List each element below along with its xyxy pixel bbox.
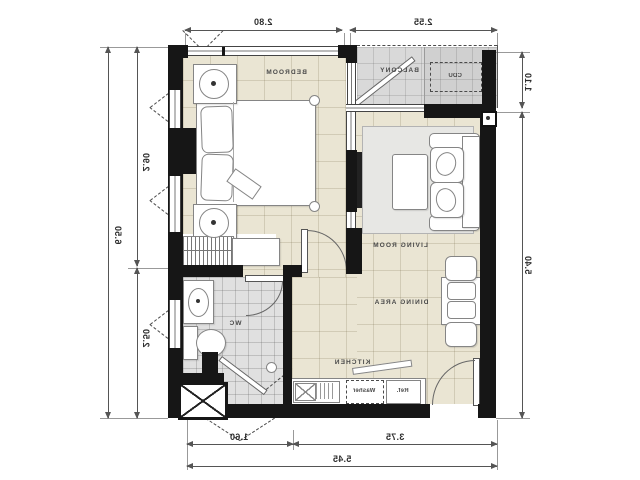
sink-basin <box>295 383 316 401</box>
wall-bedroom-balcony <box>346 45 357 63</box>
shower-head <box>266 362 277 373</box>
floor-plan: BEDROOM BALCONY CDU LIVING ROOM DINING A… <box>0 0 640 480</box>
wall-south-bedroom-2 <box>283 265 302 277</box>
dim-left-upper: 2.90 <box>140 142 152 182</box>
service-shaft <box>178 382 228 420</box>
dim-line-top-balcony <box>350 30 497 31</box>
extension-line <box>293 430 294 450</box>
wall-wc-east <box>283 277 292 404</box>
dining-placemat-2 <box>447 301 476 319</box>
dim-right-lower: 5.40 <box>522 245 534 285</box>
lamp-bottom-center <box>211 220 216 225</box>
dining-placemat-1 <box>447 282 476 300</box>
wall-balcony-bottom <box>424 104 482 118</box>
balcony-railing <box>357 45 497 46</box>
sink-drainboard <box>316 383 336 399</box>
bedroom-balcony-window <box>347 63 356 108</box>
wall-bottom-right <box>478 404 496 418</box>
sofa-back <box>462 136 480 228</box>
balcony-rail-right <box>497 45 498 108</box>
dim-bottom-left: 1.60 <box>214 431 264 443</box>
extension-line <box>344 33 345 45</box>
bedroom-east-window-1 <box>346 108 356 150</box>
dining-area-label: DINING AREA <box>356 296 446 308</box>
dim-left-lower: 2.50 <box>140 318 152 358</box>
bedroom-top-window <box>188 46 338 56</box>
dim-line-left-upper <box>137 47 138 266</box>
balcony-slider <box>346 104 424 112</box>
bedroom-left-window-2 <box>169 176 181 232</box>
dim-line-bottom-right <box>293 444 497 445</box>
bed-post-bottom <box>309 201 320 212</box>
bed-post-top <box>309 95 320 106</box>
pillow-1 <box>200 105 234 153</box>
dim-line-left-overall <box>108 47 109 418</box>
living-room-label: LIVING ROOM <box>355 239 445 251</box>
wc-left-window <box>169 300 181 348</box>
dim-line-left-lower <box>137 268 138 418</box>
coffee-table <box>392 154 428 210</box>
wall-balcony-right-pier <box>482 50 496 108</box>
dim-right-upper: 1.10 <box>522 62 534 102</box>
vanity-faucet <box>196 299 200 303</box>
bedroom-left-window-1 <box>169 90 181 128</box>
window-mullion <box>222 47 225 56</box>
wall-right <box>480 104 496 404</box>
washer-label: Washer <box>346 385 382 397</box>
wardrobe <box>178 236 234 266</box>
ref-label: Ref. <box>386 385 419 397</box>
wall-tv <box>346 150 357 212</box>
dining-chair-bottom <box>445 322 477 347</box>
extension-line <box>497 33 498 45</box>
dim-bottom-right: 3.75 <box>370 431 420 443</box>
dresser <box>232 238 280 266</box>
balcony-label: BALCONY <box>359 64 439 76</box>
dim-top-bedroom: 2.80 <box>238 16 288 28</box>
tv <box>357 152 362 208</box>
dining-chair-top <box>445 256 477 281</box>
wall-south-bedroom-1 <box>168 265 243 277</box>
bedroom-east-window-2 <box>346 212 356 228</box>
dim-left-overall: 6.50 <box>112 215 124 255</box>
dim-top-balcony: 2.55 <box>398 16 448 28</box>
balcony-cdu-divider <box>424 47 425 108</box>
wall-bedroom-corner <box>346 228 362 274</box>
bedroom-label: BEDROOM <box>246 66 326 78</box>
dim-line-bottom-overall <box>187 466 497 467</box>
wall-pier <box>183 128 196 174</box>
extension-line <box>350 33 351 45</box>
cdu-label: CDU <box>430 70 480 82</box>
dim-line-top-bedroom <box>185 30 342 31</box>
dim-bottom-overall: 5.45 <box>317 453 367 465</box>
dim-line-bottom-left <box>187 444 293 445</box>
wall-fixture-dot <box>486 116 490 120</box>
lamp-top-center <box>211 81 216 86</box>
wc-label: WC <box>215 317 255 329</box>
kitchen-label: KITCHEN <box>312 356 392 368</box>
